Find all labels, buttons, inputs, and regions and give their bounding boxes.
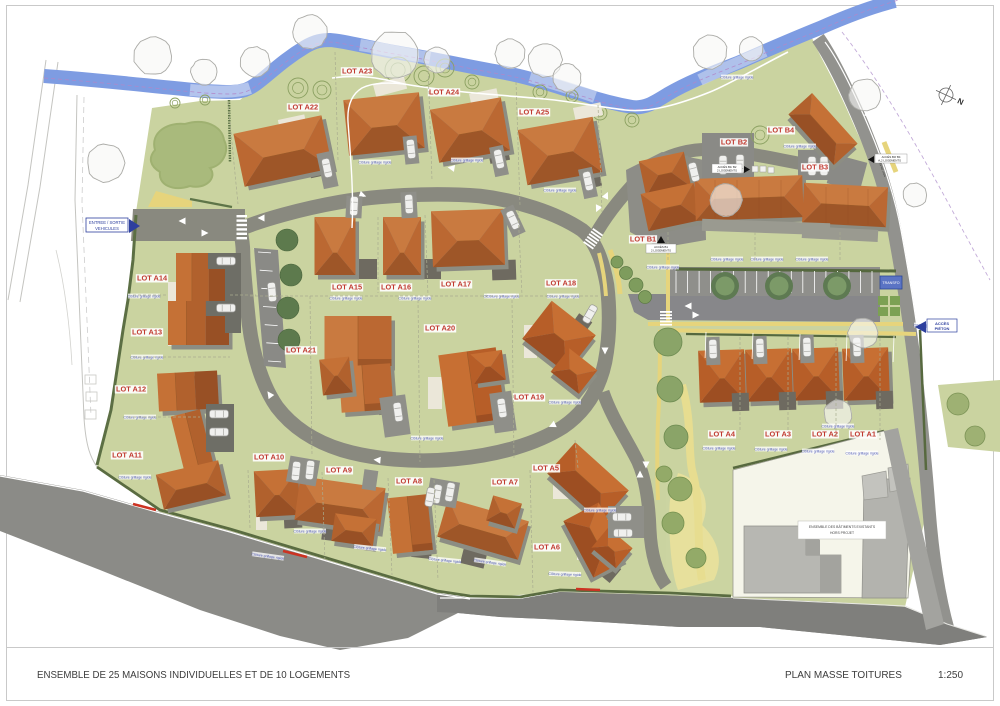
svg-text:LOT B4: LOT B4 <box>768 126 795 135</box>
svg-text:LOT A13: LOT A13 <box>132 328 162 337</box>
svg-text:VEHICULES: VEHICULES <box>95 226 119 231</box>
svg-text:Clôture grillage rigide: Clôture grillage rigide <box>486 295 519 299</box>
svg-text:LOT A21: LOT A21 <box>286 346 316 355</box>
svg-text:LOT A23: LOT A23 <box>342 67 372 76</box>
svg-text:HORS PROJET: HORS PROJET <box>830 531 854 535</box>
svg-text:Clôture grillage rigide: Clôture grillage rigide <box>450 159 483 163</box>
svg-text:LOT B3: LOT B3 <box>802 163 828 172</box>
svg-text:LOT A2: LOT A2 <box>812 430 838 439</box>
svg-text:LOT A19: LOT A19 <box>514 393 544 402</box>
svg-text:Clôture grillage rigide: Clôture grillage rigide <box>293 530 326 534</box>
svg-text:Clôture grillage rigide: Clôture grillage rigide <box>130 356 163 360</box>
svg-text:LOT A1: LOT A1 <box>850 430 876 439</box>
svg-text:Clôture grillage rigide: Clôture grillage rigide <box>398 297 431 301</box>
svg-text:Clôture grillage rigide: Clôture grillage rigide <box>795 258 828 262</box>
svg-text:Clôture grillage rigide: Clôture grillage rigide <box>720 76 753 80</box>
svg-text:1:250: 1:250 <box>938 670 963 681</box>
svg-text:PIÉTON: PIÉTON <box>935 326 950 331</box>
svg-text:LOT A18: LOT A18 <box>546 279 576 288</box>
svg-text:Clôture grillage rigide: Clôture grillage rigide <box>646 266 679 270</box>
svg-text:LOT A25: LOT A25 <box>519 108 549 117</box>
svg-text:Clôture grillage rigide: Clôture grillage rigide <box>358 161 391 165</box>
svg-text:Clôture grillage rigide: Clôture grillage rigide <box>845 452 878 456</box>
svg-text:Clôture grillage rigide: Clôture grillage rigide <box>750 258 783 262</box>
svg-text:Clôture grillage rigide: Clôture grillage rigide <box>821 425 854 429</box>
svg-text:LOT A11: LOT A11 <box>112 451 142 460</box>
svg-text:LOT A12: LOT A12 <box>116 385 146 394</box>
svg-text:Clôture grillage rigide: Clôture grillage rigide <box>801 450 834 454</box>
svg-text:Clôture grillage rigide: Clôture grillage rigide <box>410 437 443 441</box>
svg-text:LOT A20: LOT A20 <box>425 324 455 333</box>
svg-text:LOT A6: LOT A6 <box>534 543 560 552</box>
svg-text:Clôture grillage rigide: Clôture grillage rigide <box>783 145 816 149</box>
svg-text:Clôture grillage rigide: Clôture grillage rigide <box>543 189 576 193</box>
svg-text:Clôture grillage rigide: Clôture grillage rigide <box>754 448 787 452</box>
svg-text:TRANSFO: TRANSFO <box>882 281 899 285</box>
svg-text:LOT A15: LOT A15 <box>332 283 362 292</box>
svg-text:LOT A24: LOT A24 <box>429 88 460 97</box>
svg-text:ENSEMBLE DE 25 MAISONS INDIVID: ENSEMBLE DE 25 MAISONS INDIVIDUELLES ET … <box>37 670 351 681</box>
svg-text:LOT A14: LOT A14 <box>137 274 168 283</box>
svg-text:2 LOGEMENTS: 2 LOGEMENTS <box>651 249 671 253</box>
svg-text:2 LOGEMENTS: 2 LOGEMENTS <box>717 169 737 173</box>
svg-text:Clôture grillage rigide: Clôture grillage rigide <box>583 509 616 513</box>
svg-text:2 LOGEMENTS: 2 LOGEMENTS <box>881 159 901 163</box>
svg-text:LOT A5: LOT A5 <box>533 464 559 473</box>
svg-text:Clôture grillage rigide: Clôture grillage rigide <box>123 416 156 420</box>
svg-text:PLAN MASSE TOITURES: PLAN MASSE TOITURES <box>785 670 902 681</box>
svg-text:LOT A10: LOT A10 <box>254 453 284 462</box>
svg-text:Clôture grillage rigide: Clôture grillage rigide <box>702 447 735 451</box>
svg-text:LOT A3: LOT A3 <box>765 430 791 439</box>
svg-text:LOT A16: LOT A16 <box>381 283 411 292</box>
svg-text:LOT B2: LOT B2 <box>721 138 747 147</box>
svg-text:LOT A7: LOT A7 <box>492 478 518 487</box>
svg-text:Clôture grillage rigide: Clôture grillage rigide <box>710 258 743 262</box>
svg-text:LOT A9: LOT A9 <box>326 466 352 475</box>
svg-text:Clôture grillage rigide: Clôture grillage rigide <box>118 476 151 480</box>
svg-text:LOT A22: LOT A22 <box>288 103 318 112</box>
svg-text:Clôture grillage rigide: Clôture grillage rigide <box>546 295 579 299</box>
svg-text:Clôture grillage rigide: Clôture grillage rigide <box>548 401 581 405</box>
svg-text:LOT B1: LOT B1 <box>630 235 656 244</box>
svg-text:ENSEMBLE DES BÂTIMENTS EXISTAN: ENSEMBLE DES BÂTIMENTS EXISTANTS <box>809 525 876 529</box>
svg-text:LOT A4: LOT A4 <box>709 430 736 439</box>
svg-text:LOT A8: LOT A8 <box>396 477 422 486</box>
svg-text:ENTREE / SORTIE: ENTREE / SORTIE <box>89 220 125 225</box>
svg-text:Clôture grillage rigide: Clôture grillage rigide <box>329 297 362 301</box>
svg-text:LOT A17: LOT A17 <box>441 280 471 289</box>
